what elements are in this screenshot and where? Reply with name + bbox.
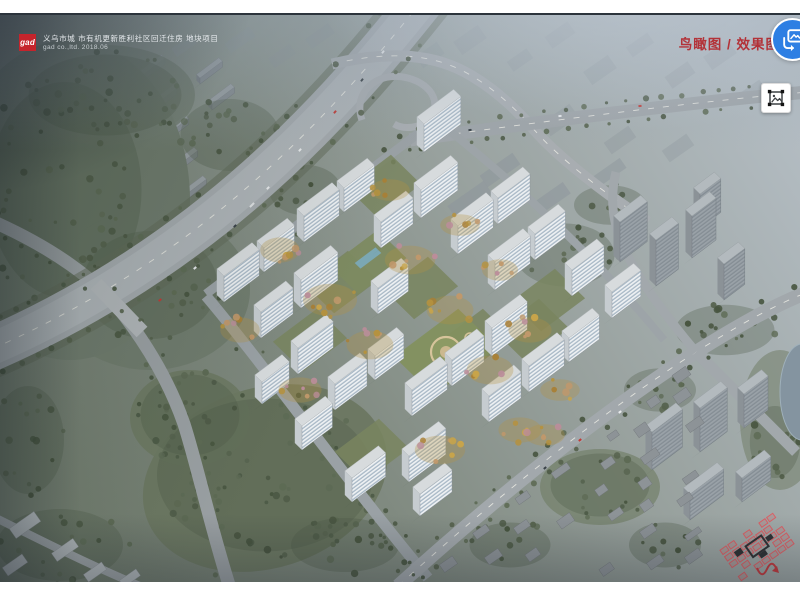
gad-logo: gad (19, 34, 36, 51)
image-placeholder-icon (764, 86, 788, 110)
project-title: 义乌市城 市有机更新胜利社区回迁住房 地块项目 (43, 33, 218, 44)
aerial-render-svg (0, 15, 800, 582)
project-subtitle: gad co.,ltd. 2018.06 (43, 44, 108, 51)
aerial-render-image (0, 13, 800, 582)
view-type-label: 鸟瞰图 / 效果图 (679, 33, 780, 53)
screenshot-root: gad 义乌市城 市有机更新胜利社区回迁住房 地块项目 gad co.,ltd.… (0, 0, 800, 600)
image-annotate-button[interactable] (761, 83, 791, 113)
bottom-margin (0, 582, 800, 600)
image-translate-icon (780, 27, 800, 52)
top-margin (0, 0, 800, 13)
